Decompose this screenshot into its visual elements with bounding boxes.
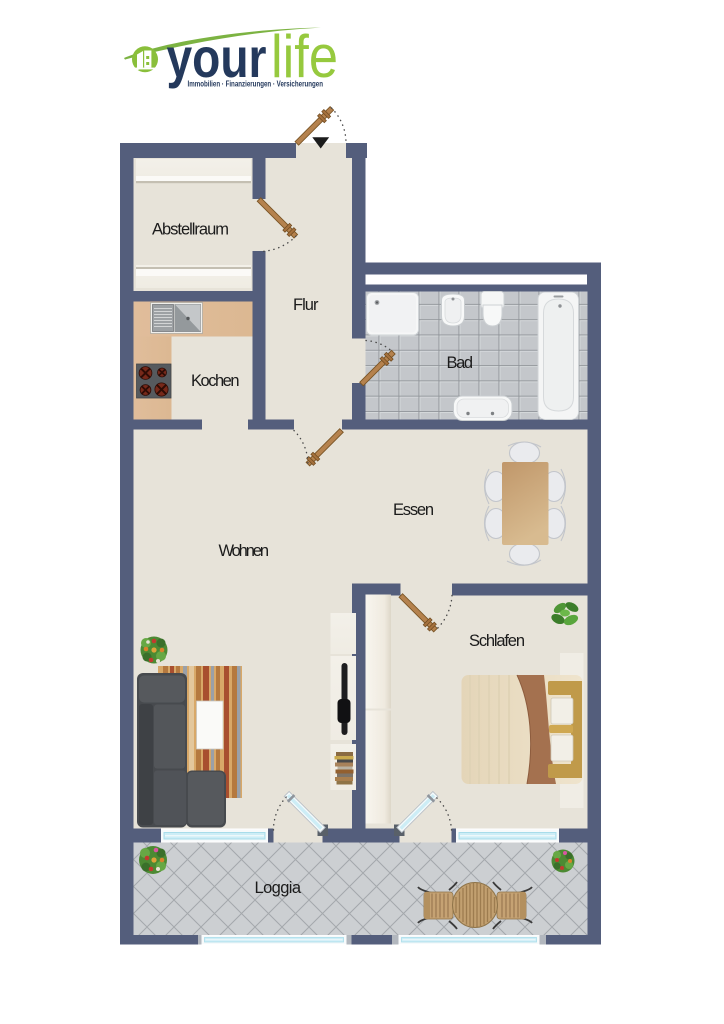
svg-text:Wohnen: Wohnen bbox=[219, 542, 270, 560]
svg-text:Abstellraum: Abstellraum bbox=[152, 221, 229, 239]
svg-text:Immobilien · Finanzierungen ·: Immobilien · Finanzierungen · Versicheru… bbox=[188, 79, 324, 89]
svg-text:Flur: Flur bbox=[293, 296, 319, 314]
svg-text:Schlafen: Schlafen bbox=[469, 632, 525, 650]
svg-text:Essen: Essen bbox=[393, 501, 434, 519]
svg-text:Kochen: Kochen bbox=[191, 372, 240, 390]
svg-text:Loggia: Loggia bbox=[255, 879, 302, 897]
svg-text:Bad: Bad bbox=[447, 354, 474, 372]
